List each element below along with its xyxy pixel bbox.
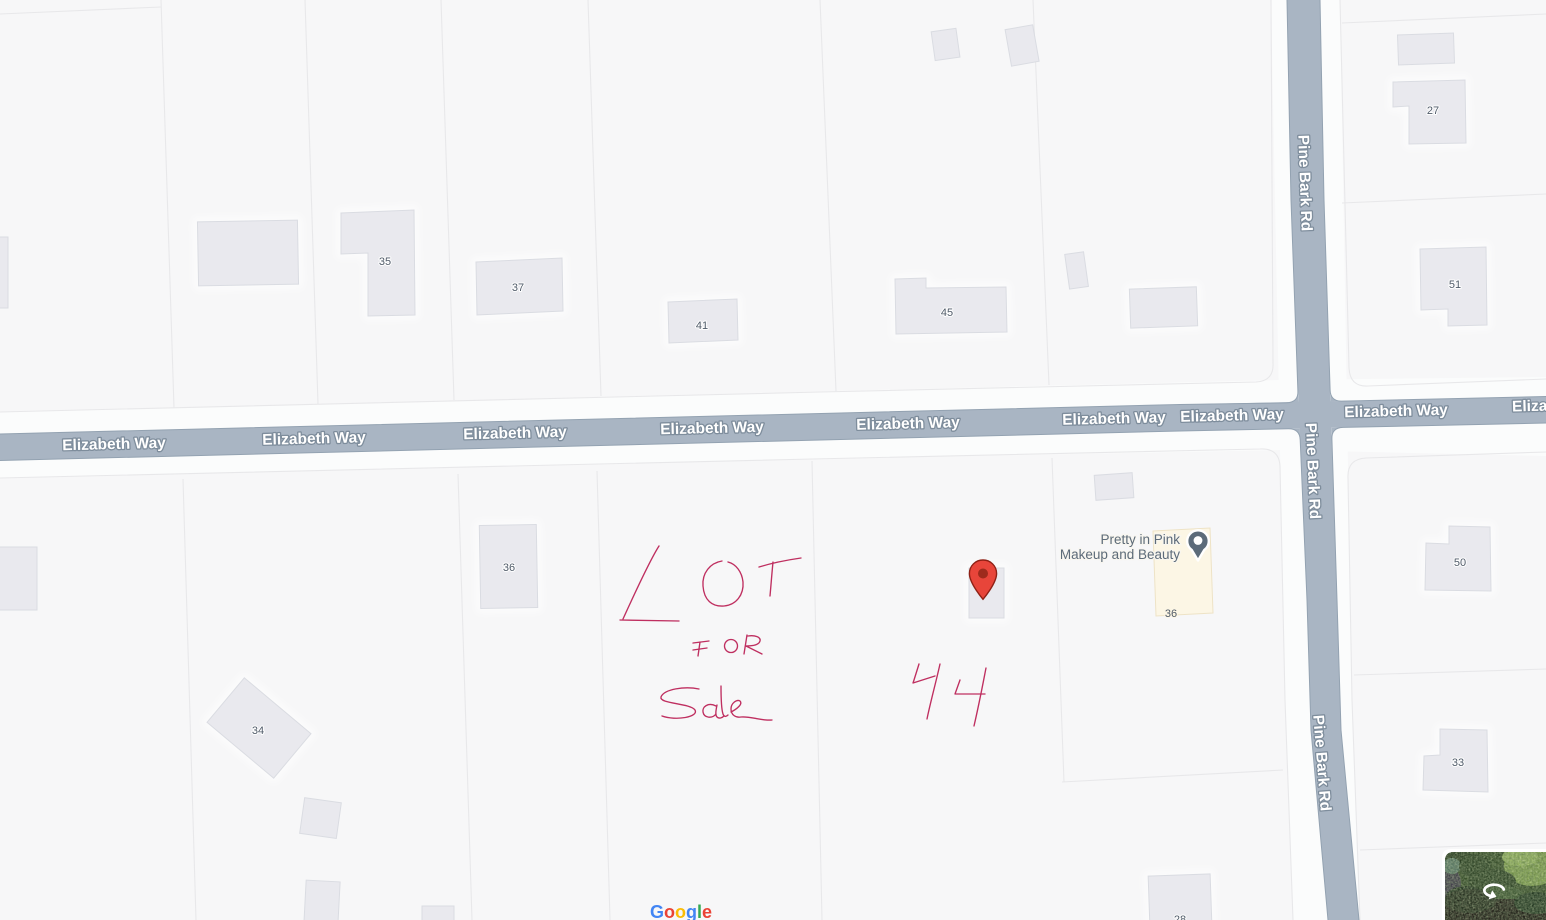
svg-text:37: 37 <box>512 282 524 294</box>
svg-text:41: 41 <box>696 320 708 332</box>
svg-text:33: 33 <box>1452 757 1464 769</box>
svg-text:Elizabeth Way: Elizabeth Way <box>1062 409 1166 429</box>
svg-text:50: 50 <box>1454 557 1466 569</box>
svg-text:27: 27 <box>1427 105 1439 117</box>
svg-text:Google: Google <box>650 902 712 920</box>
svg-text:Elizabeth Way: Elizabeth Way <box>262 429 366 449</box>
svg-text:35: 35 <box>379 256 391 268</box>
svg-text:36: 36 <box>1165 608 1177 620</box>
svg-text:36: 36 <box>503 562 515 574</box>
svg-text:34: 34 <box>252 725 264 737</box>
svg-text:45: 45 <box>941 307 953 319</box>
svg-text:Elizabeth Way: Elizabeth Way <box>1344 402 1448 422</box>
svg-text:Elizabeth Way: Elizabeth Way <box>62 435 166 455</box>
svg-text:Elizabeth Way: Elizabeth Way <box>856 414 960 434</box>
svg-text:Elizabeth Way: Elizabeth Way <box>660 419 764 439</box>
svg-text:Pretty in Pink: Pretty in Pink <box>1100 532 1180 547</box>
svg-text:Pine Bark Rd: Pine Bark Rd <box>1294 135 1314 232</box>
svg-text:Elizabeth Way: Elizabeth Way <box>463 424 567 444</box>
svg-text:Elizabeth Way: Elizabeth Way <box>1180 406 1284 426</box>
svg-text:Elizabeth Way: Elizabeth Way <box>1512 396 1546 416</box>
svg-text:51: 51 <box>1449 279 1461 291</box>
svg-text:Makeup and Beauty: Makeup and Beauty <box>1060 547 1180 562</box>
svg-text:28: 28 <box>1174 914 1186 920</box>
